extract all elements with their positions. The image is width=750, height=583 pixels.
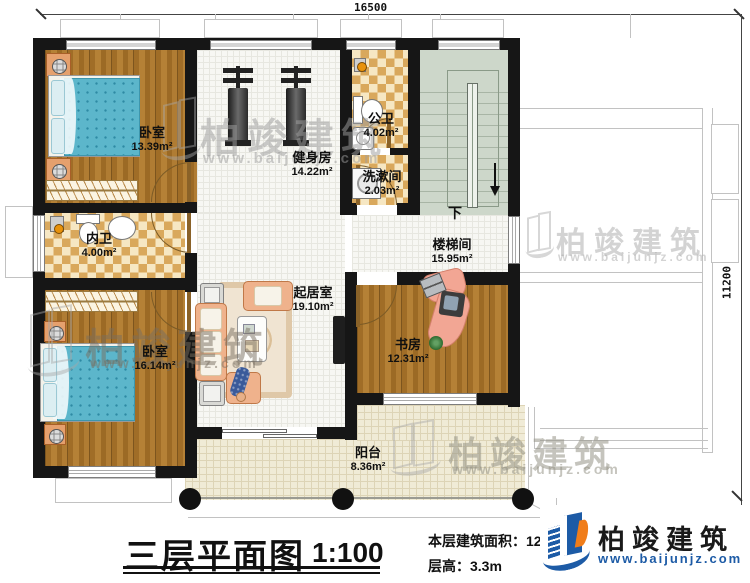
wall-study-north — [345, 272, 357, 285]
roof-outline — [520, 108, 702, 109]
wall-interior — [33, 203, 197, 213]
watermark-logo-icon — [30, 306, 78, 376]
top-dimension-label: 16500 — [354, 1, 387, 14]
roof-outline — [702, 108, 703, 453]
wall-interior — [340, 203, 357, 215]
wall-living-south — [197, 427, 222, 439]
plant — [429, 336, 443, 350]
pillow — [43, 383, 57, 417]
sliding-door-panel — [263, 434, 317, 438]
tv — [333, 316, 345, 364]
balcony-column — [332, 488, 354, 510]
wall-interior — [185, 202, 197, 213]
top-dimension-line — [40, 14, 740, 15]
wardrobe — [46, 180, 138, 201]
window — [33, 215, 45, 272]
nightstand — [46, 158, 71, 182]
window — [438, 40, 500, 50]
balcony-column — [512, 488, 534, 510]
room-label-public-bath: 公卫 4.02m² — [364, 112, 399, 139]
stair-direction-label: 下 — [448, 203, 462, 223]
side-table — [199, 381, 225, 406]
watermark-logo-icon — [393, 421, 439, 475]
window — [346, 40, 396, 50]
window-sill — [340, 19, 402, 38]
nightstand — [44, 424, 66, 445]
window — [66, 40, 156, 50]
floor-height-text: 层高：3.3m — [428, 556, 502, 576]
balcony-outer-line — [188, 517, 556, 518]
window — [383, 393, 477, 405]
window-sill — [204, 19, 318, 38]
pillow — [51, 80, 65, 116]
stair-railing — [467, 83, 478, 208]
window — [508, 216, 520, 264]
watermark-url: www.baijunjz.com — [558, 250, 710, 264]
monitor-screen — [443, 295, 459, 311]
door-leaf — [187, 162, 191, 202]
person-head — [236, 392, 246, 402]
plan-title: 三层平面图 — [125, 529, 305, 578]
heater-knob-icon — [54, 224, 64, 234]
heater-knob-icon — [357, 62, 367, 72]
sliding-door-panel — [222, 429, 287, 433]
bay-window-outline — [5, 206, 33, 278]
brand-website: www.baijunjz.com — [598, 551, 742, 566]
wall-interior — [397, 203, 420, 215]
room-label-balcony: 阳台 8.36m² — [351, 446, 386, 473]
door-leaf — [187, 213, 191, 253]
room-label-private-bath: 内卫 4.00m² — [82, 232, 117, 259]
room-label-bedroom-top: 卧室 13.39m² — [132, 126, 173, 153]
roof-window-outline — [711, 199, 739, 263]
armchair — [243, 281, 293, 311]
roof-outline — [520, 272, 702, 273]
right-dimension-label: 11200 — [721, 263, 734, 303]
extension-line — [630, 14, 631, 38]
stair-arrow — [494, 163, 496, 187]
room-label-stairwell: 楼梯间 15.95m² — [432, 238, 473, 265]
window-sill — [60, 19, 160, 38]
room-label-study: 书房 12.31m² — [388, 338, 429, 365]
balcony-column — [179, 488, 201, 510]
nightstand — [46, 53, 71, 77]
room-label-bedroom-bottom: 卧室 16.14m² — [135, 345, 176, 372]
pillow — [51, 118, 65, 154]
stair-arrow-head — [490, 186, 500, 196]
door-leaf — [356, 285, 360, 327]
roof-outline — [520, 282, 702, 283]
title-underline — [123, 572, 380, 574]
room-label-washroom: 洗漱间 2.03m² — [362, 170, 401, 197]
window-sill — [432, 19, 504, 38]
brand-logo-icon — [545, 512, 593, 570]
room-label-living: 起居室 19.10m² — [293, 286, 334, 313]
right-dimension-line — [741, 14, 742, 514]
roof-window-outline — [711, 124, 739, 194]
watermark-url: www.baijunjz.com — [452, 461, 621, 477]
gym-machine — [294, 66, 298, 88]
hall-floor — [352, 215, 508, 272]
wall-interior — [33, 278, 197, 290]
roof-outline — [520, 128, 702, 129]
wall-interior — [185, 253, 197, 292]
wall-interior — [408, 50, 420, 215]
title-underline — [123, 566, 380, 569]
wall-interior — [390, 148, 408, 155]
room-label-gym: 健身房 14.22m² — [292, 151, 333, 178]
window-sill — [55, 478, 172, 503]
watermark-logo-icon — [527, 212, 553, 258]
floor-plan-canvas: 16500 11200 — [0, 0, 750, 583]
window — [68, 466, 156, 478]
gym-machine — [236, 66, 240, 88]
balcony-railing — [185, 497, 533, 499]
plan-scale: 1:100 — [312, 537, 384, 569]
wall-living-south — [317, 427, 357, 439]
window — [210, 40, 312, 50]
roof-outline — [702, 452, 713, 453]
